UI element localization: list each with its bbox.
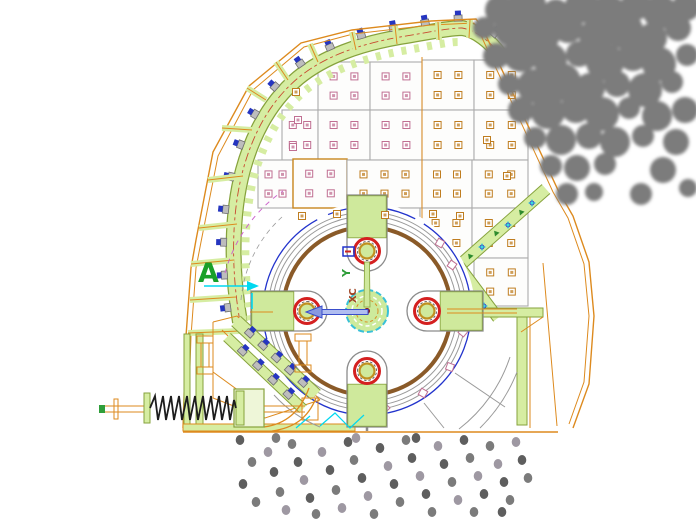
panel-bolt-center — [281, 173, 284, 176]
hammer-pivot-pin — [420, 304, 435, 319]
falling-particle — [494, 459, 503, 469]
rock — [676, 44, 696, 66]
bolt-base — [221, 271, 227, 279]
liner-panel — [293, 159, 347, 208]
panel-bolt-center — [457, 94, 460, 97]
falling-particle — [440, 459, 449, 469]
falling-particle — [352, 433, 361, 443]
rock — [556, 183, 578, 205]
falling-particle — [512, 437, 521, 447]
falling-particle — [402, 435, 411, 445]
falling-particle — [454, 495, 463, 505]
panel-bolt-center — [487, 192, 490, 195]
coil-spring — [150, 396, 236, 420]
rock — [672, 97, 696, 123]
falling-particle — [306, 493, 315, 503]
liner-panel — [422, 160, 472, 208]
liner-panel — [472, 160, 528, 208]
panel-bolt-center — [362, 173, 365, 176]
falling-particle — [288, 439, 297, 449]
falling-particle — [422, 489, 431, 499]
ucs-y-axis-arrow — [364, 262, 370, 307]
base-plate — [183, 424, 355, 431]
panel-bolt-center — [405, 75, 408, 78]
panel-bolt-center — [510, 144, 513, 147]
falling-particle — [518, 455, 527, 465]
falling-particle — [272, 433, 281, 443]
panel-bolt-center — [405, 94, 408, 97]
panel-bolt-center — [292, 146, 295, 149]
panel-bolt-center — [353, 94, 356, 97]
panel-bolt-center — [456, 192, 459, 195]
falling-particle — [470, 507, 479, 517]
rock — [604, 71, 630, 97]
rock — [665, 15, 691, 41]
falling-particle — [500, 477, 509, 487]
falling-particle — [480, 489, 489, 499]
rock — [663, 129, 689, 155]
rock — [553, 13, 583, 43]
panel-bolt-center — [295, 91, 298, 94]
rod-tee — [114, 399, 118, 419]
rock — [585, 183, 603, 201]
panel-bolt-center — [510, 290, 513, 293]
panel-bolt-center — [457, 144, 460, 147]
liner-bolt — [216, 238, 227, 246]
falling-particle — [318, 447, 327, 457]
panel-bolt-center — [455, 222, 458, 225]
bolt-base — [224, 303, 231, 312]
bolt-cap — [216, 239, 221, 245]
falling-particle — [338, 503, 347, 513]
hammer-holder — [348, 196, 386, 238]
panel-bolt-center — [329, 172, 332, 175]
falling-particle — [294, 457, 303, 467]
panel-bolt-center — [353, 124, 356, 127]
panel-bolt-center — [510, 242, 513, 245]
panel-bolt-center — [436, 144, 439, 147]
rock — [498, 73, 520, 95]
falling-particle — [282, 505, 291, 515]
radial-line — [424, 403, 444, 428]
panel-bolt-center — [308, 172, 311, 175]
panel-bolt-center — [353, 144, 356, 147]
panel-bolt-center — [384, 124, 387, 127]
liner-panel — [318, 110, 370, 160]
panel-bolt-center — [436, 173, 439, 176]
panel-bolt-center — [404, 192, 407, 195]
falling-particle — [270, 467, 279, 477]
rock — [632, 125, 654, 147]
liner-bolt — [218, 205, 229, 214]
panel-bolt-center — [436, 94, 439, 97]
liner-panel — [258, 160, 293, 208]
falling-particle — [239, 479, 248, 489]
panel-bolt-center — [455, 242, 458, 245]
hammer-pivot-pin — [360, 364, 375, 379]
ucs-y-label: Y — [340, 268, 353, 278]
falling-particle — [384, 461, 393, 471]
panel-bolt-center — [487, 222, 490, 225]
panel-bolt-center — [353, 75, 356, 78]
bolt-base — [222, 205, 229, 214]
falling-particle — [326, 465, 335, 475]
rock — [600, 127, 630, 157]
hammer-holder — [440, 292, 482, 330]
rock — [531, 95, 565, 129]
panel-bolt-center — [383, 173, 386, 176]
liner-bolt — [220, 303, 231, 312]
shaft-arrow-body — [318, 310, 368, 315]
inner-slant-wall — [543, 263, 557, 426]
falling-particle — [390, 479, 399, 489]
bolt-cap — [455, 10, 461, 15]
panel-bolt-center — [434, 222, 437, 225]
panel-bolt-center — [329, 192, 332, 195]
panel-bolt-center — [432, 213, 435, 216]
rock — [594, 153, 616, 175]
panel-bolt-center — [489, 74, 492, 77]
panel-bolt-center — [510, 271, 513, 274]
spring-seat — [144, 393, 150, 423]
falling-particle — [460, 435, 469, 445]
liner-panel — [422, 60, 474, 110]
panel-bolt-center — [489, 124, 492, 127]
rock — [661, 71, 683, 93]
hammer-assembly — [407, 291, 483, 331]
liner-panel — [422, 110, 474, 160]
panel-bolt-center — [267, 192, 270, 195]
section-marker-label: A — [198, 258, 219, 289]
rock — [546, 125, 576, 155]
spring-seat — [236, 391, 244, 425]
rock — [524, 127, 546, 149]
bolt-cap — [220, 305, 225, 312]
bolt-base — [221, 238, 227, 246]
crusher-section-view: Y XC — [0, 0, 696, 520]
falling-particle — [486, 441, 495, 451]
panel-bolt-center — [456, 173, 459, 176]
falling-particle — [252, 497, 261, 507]
ucs-xc-label: XC — [348, 288, 359, 303]
falling-particle — [466, 453, 475, 463]
falling-particle — [332, 485, 341, 495]
rock — [618, 97, 640, 119]
panel-bolt-center — [332, 124, 335, 127]
panel-bolt-center — [486, 139, 489, 142]
falling-particle — [434, 441, 443, 451]
panel-bolt-center — [291, 124, 294, 127]
panel-bolt-center — [489, 94, 492, 97]
rod-end-cap — [99, 405, 105, 413]
falling-particle — [350, 455, 359, 465]
falling-particle — [312, 509, 321, 519]
falling-particle — [344, 437, 353, 447]
panel-bolt-center — [487, 173, 490, 176]
falling-particle — [498, 507, 507, 517]
panel-bolt-center — [436, 192, 439, 195]
panel-bolt-center — [510, 192, 513, 195]
panel-bolt-center — [384, 94, 387, 97]
falling-particle — [236, 435, 245, 445]
radial-line — [455, 373, 505, 407]
falling-particle — [358, 473, 367, 483]
crusher-cad-drawing: Y XC — [0, 0, 696, 520]
falling-particle — [264, 447, 273, 457]
rock — [473, 17, 495, 39]
falling-particle — [376, 443, 385, 453]
falling-particle — [448, 477, 457, 487]
rock — [540, 155, 562, 177]
liner-panel — [370, 110, 422, 160]
panel-bolt-center — [436, 124, 439, 127]
panel-bolt-center — [510, 124, 513, 127]
falling-particle — [370, 509, 379, 519]
falling-particle — [428, 507, 437, 517]
panel-bolt-center — [267, 173, 270, 176]
rock — [679, 179, 696, 197]
falling-particle — [276, 487, 285, 497]
rock — [650, 157, 676, 183]
panel-bolt-center — [436, 74, 439, 77]
panel-bolt-center — [306, 124, 309, 127]
falling-particle — [506, 495, 515, 505]
panel-bolt-center — [457, 124, 460, 127]
panel-bolt-center — [301, 215, 304, 218]
hammer-pivot-pin — [360, 244, 375, 259]
discharge-wall-strip — [517, 317, 527, 425]
falling-particle — [416, 471, 425, 481]
rock — [508, 97, 534, 123]
section-arrow-head — [247, 281, 259, 291]
rock — [503, 36, 539, 72]
discharge-arc — [480, 372, 517, 428]
hammer-holder — [252, 292, 294, 330]
rock — [576, 123, 602, 149]
panel-bolt-center — [405, 124, 408, 127]
liner-bolt — [232, 138, 245, 149]
panel-bolt-center — [384, 144, 387, 147]
panel-bolt-center — [404, 173, 407, 176]
rock — [564, 155, 590, 181]
panel-bolt-center — [332, 94, 335, 97]
falling-particle — [412, 433, 421, 443]
hammer-assembly — [347, 195, 387, 271]
panel-bolt-center — [306, 144, 309, 147]
liner-panel — [370, 62, 422, 110]
panel-bolt-center — [297, 119, 300, 122]
hammer-holder — [348, 384, 386, 426]
panel-bolt-center — [459, 215, 462, 218]
hammer-assembly — [347, 351, 387, 427]
panel-bolt-center — [506, 175, 509, 178]
panel-bolt-center — [308, 192, 311, 195]
panel-bolt-center — [489, 271, 492, 274]
bolt-cap — [218, 206, 223, 212]
falling-particle — [300, 475, 309, 485]
panel-bolt-center — [457, 74, 460, 77]
falling-particle — [248, 457, 257, 467]
panel-bolt-center — [384, 75, 387, 78]
falling-particle — [408, 453, 417, 463]
falling-particle — [474, 471, 483, 481]
panel-bolt-center — [336, 213, 339, 216]
falling-particle — [524, 473, 533, 483]
falling-particle — [396, 497, 405, 507]
falling-particle — [364, 491, 373, 501]
panel-bolt-center — [405, 144, 408, 147]
rock — [630, 183, 652, 205]
panel-bolt-center — [489, 290, 492, 293]
crushed-product-particles — [236, 433, 533, 519]
liner-bolt — [420, 14, 430, 26]
panel-bolt-center — [384, 214, 387, 217]
panel-bolt-center — [332, 144, 335, 147]
